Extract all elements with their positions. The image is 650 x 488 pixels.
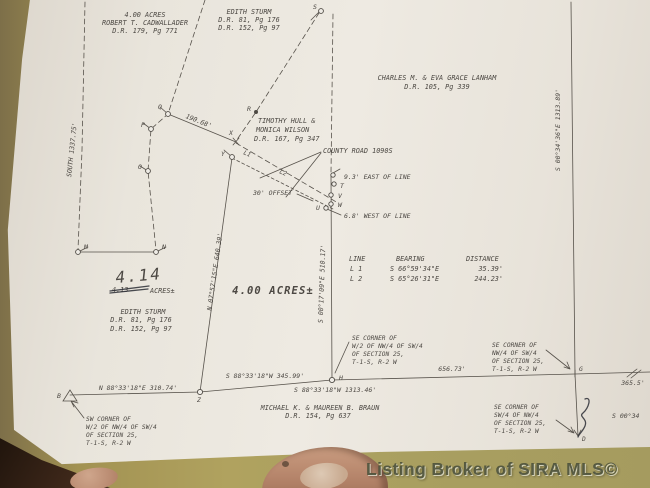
s0034-bearing: S 00°34 xyxy=(612,412,639,420)
parcel-area-label: 4.00 ACRES± xyxy=(232,285,314,297)
county-road-label: COUNTY ROAD 1090S xyxy=(323,147,393,155)
se-w2-line1: SE CORNER OF xyxy=(352,335,397,342)
point-Z-marker xyxy=(197,389,202,394)
table-row2-distance: 244.23' xyxy=(474,275,503,283)
hull-name1: TIMOTHY HULL & xyxy=(258,117,315,125)
handwritten-new-area: 4.14 xyxy=(115,264,163,287)
z-h-bearing: S 88°33'18"W 345.99' xyxy=(226,372,304,380)
l1-label: L1 xyxy=(242,149,252,158)
braun-name: MICHAEL K. & MAUREEN B. BRAUN xyxy=(260,404,381,412)
cadwallader-name: ROBERT T. CADWALLADER xyxy=(102,19,188,27)
se-sw4-line2: SW/4 OF NW/4 xyxy=(494,412,539,419)
lanham-name: CHARLES M. & EVA GRACE LANHAM xyxy=(378,74,498,82)
tie-distance-label: 190.68' xyxy=(185,112,213,130)
pen-scribble xyxy=(578,399,589,437)
h-row-bearing: S 88°33'18"W 1313.46' xyxy=(294,386,376,394)
point-W-label: W xyxy=(338,201,343,209)
point-T-marker xyxy=(332,182,336,186)
point-Q-marker xyxy=(166,112,171,117)
sturm-north-deed1: D.R. 81, Pg 176 xyxy=(217,16,279,24)
se-w2-line4: T-1-S, R-2 W xyxy=(352,359,398,366)
se-nw4-line2: NW/4 OF SW/4 xyxy=(491,350,537,357)
east-of-line-label: 9.3' EAST OF LINE xyxy=(344,173,411,181)
sw-corner-line3: OF SECTION 25, xyxy=(86,432,138,439)
point-D-label: D xyxy=(581,436,586,443)
se-nw4-line1: SE CORNER OF xyxy=(492,342,537,349)
point-labels: S R Q P O X Y M N T V W U B Z H G D xyxy=(57,3,586,443)
se-nw4-leader xyxy=(546,350,570,369)
west-of-line-leader xyxy=(327,209,341,215)
sw-corner-line2: W/2 OF NW/4 OF SW/4 xyxy=(86,424,157,431)
table-row1-line: L 1 xyxy=(350,265,362,273)
sturm-north-deed2: D.R. 152, Pg 97 xyxy=(217,24,280,32)
point-N-marker xyxy=(154,250,159,255)
se-nw4-line4: T-1-S, R-2 W xyxy=(492,366,538,373)
thumbnail-spot xyxy=(282,461,289,467)
table-row1-distance: 35.39' xyxy=(477,265,503,273)
hull-name2: MONICA WILSON xyxy=(255,126,310,134)
se-sw4-line4: T-1-S, R-2 W xyxy=(494,428,540,435)
point-H-marker xyxy=(329,377,334,382)
point-B-marker xyxy=(63,390,77,401)
east-of-line-monument xyxy=(331,173,335,177)
table-header-distance: DISTANCE xyxy=(465,255,500,263)
cadwallader-acres: 4.00 ACRES xyxy=(125,11,166,19)
mls-watermark: Listing Broker of SIRA MLS© xyxy=(366,459,650,480)
east-of-line-flag xyxy=(333,169,340,173)
point-N-label: N xyxy=(161,243,166,251)
point-R-marker xyxy=(254,110,258,114)
se-nw4-line3: OF SECTION 25, xyxy=(492,358,544,365)
point-V-marker xyxy=(329,193,333,197)
sturm-north-name: EDITH STURM xyxy=(226,8,272,16)
thumbnail xyxy=(299,461,349,488)
point-H-label: H xyxy=(338,374,343,382)
line-table: LINE BEARING DISTANCE L 1 S 66°59'34"E 3… xyxy=(349,255,503,283)
point-P-label: P xyxy=(141,121,145,129)
point-M-marker xyxy=(76,250,81,255)
east-line-label: S 00°34'36"E 1313.89' xyxy=(554,89,562,171)
west-dashed-line xyxy=(148,0,205,250)
h-g-distance: 656.73' xyxy=(438,365,465,373)
se-w2-line3: OF SECTION 25, xyxy=(352,351,404,358)
sturm-west-name: EDITH STURM xyxy=(120,308,166,316)
sw-corner-line1: SW CORNER OF xyxy=(86,416,131,423)
se-sw4-line1: SE CORNER OF xyxy=(494,404,539,411)
se-w2-line2: W/2 OF NW/4 OF SW/4 xyxy=(352,343,423,350)
l2-label: L2 xyxy=(278,168,288,178)
sw-corner-leader xyxy=(71,401,84,418)
owner-labels: 4.00 ACRES ROBERT T. CADWALLADER D.R. 17… xyxy=(102,8,497,420)
south-line-label: SOUTH 1337.75' xyxy=(65,122,79,177)
acres-unit-label: ACRES± xyxy=(149,287,175,295)
table-header-bearing: BEARING xyxy=(396,255,425,263)
point-U-label: U xyxy=(316,204,320,212)
lanham-deed: D.R. 105, Pg 339 xyxy=(403,83,469,91)
east-section-line xyxy=(571,2,578,436)
table-row2-bearing: S 65°26'31"E xyxy=(390,275,440,283)
point-V-label: V xyxy=(338,192,343,200)
point-T-label: T xyxy=(340,182,345,190)
line-break-marks xyxy=(627,369,641,378)
point-S-label: S xyxy=(313,3,317,11)
sturm-west-deed1: D.R. 81, Pg 176 xyxy=(109,316,171,324)
west-of-line-label: 6.8' WEST OF LINE xyxy=(344,212,411,220)
point-X-label: X xyxy=(228,129,234,137)
photo-of-survey-plat: S R Q P O X Y M N T V W U B Z H G D 4.00… xyxy=(0,0,650,488)
parcel-east-bearing: S 00°17'09"E 510.17' xyxy=(317,245,328,324)
point-B-label: B xyxy=(57,392,61,400)
g-e-distance: 365.5' xyxy=(620,379,644,387)
table-row1-bearing: S 66°59'34"E xyxy=(390,265,440,273)
point-P-marker xyxy=(149,127,154,132)
se-sw4-leader xyxy=(556,420,574,433)
point-Z-label: Z xyxy=(196,396,202,404)
sw-corner-line4: T-1-S, R-2 W xyxy=(86,440,132,447)
hull-deed: D.R. 167, Pg 347 xyxy=(253,135,320,143)
plat-drawing: S R Q P O X Y M N T V W U B Z H G D 4.00… xyxy=(0,0,650,488)
offset-label: 30' OFFSET xyxy=(252,189,293,197)
point-W-marker xyxy=(329,202,333,206)
point-G-label: G xyxy=(579,365,583,373)
point-S-marker xyxy=(319,9,324,14)
point-U-marker xyxy=(324,206,328,210)
se-sw4-line3: OF SECTION 25, xyxy=(494,420,546,427)
point-O-marker xyxy=(146,169,151,174)
sturm-west-deed2: D.R. 152, Pg 97 xyxy=(109,325,172,333)
table-header-line: LINE xyxy=(349,255,366,263)
point-R-label: R xyxy=(247,105,251,113)
point-Q-label: Q xyxy=(158,103,162,111)
point-O-label: O xyxy=(138,163,142,171)
cadwallader-deed: D.R. 179, Pg 771 xyxy=(111,27,177,35)
b-z-bearing: N 88°33'18"E 310.74' xyxy=(98,384,177,392)
table-row2-line: L 2 xyxy=(350,275,362,283)
se-w2-leader xyxy=(335,342,349,373)
road-offset-line xyxy=(232,158,333,209)
south-quarter-line xyxy=(78,2,85,250)
point-Y-marker xyxy=(230,155,235,160)
braun-deed: D.R. 154, Pg 637 xyxy=(284,412,351,420)
parcel-west-bearing: N 07°57'15"E 640.39' xyxy=(205,232,224,312)
